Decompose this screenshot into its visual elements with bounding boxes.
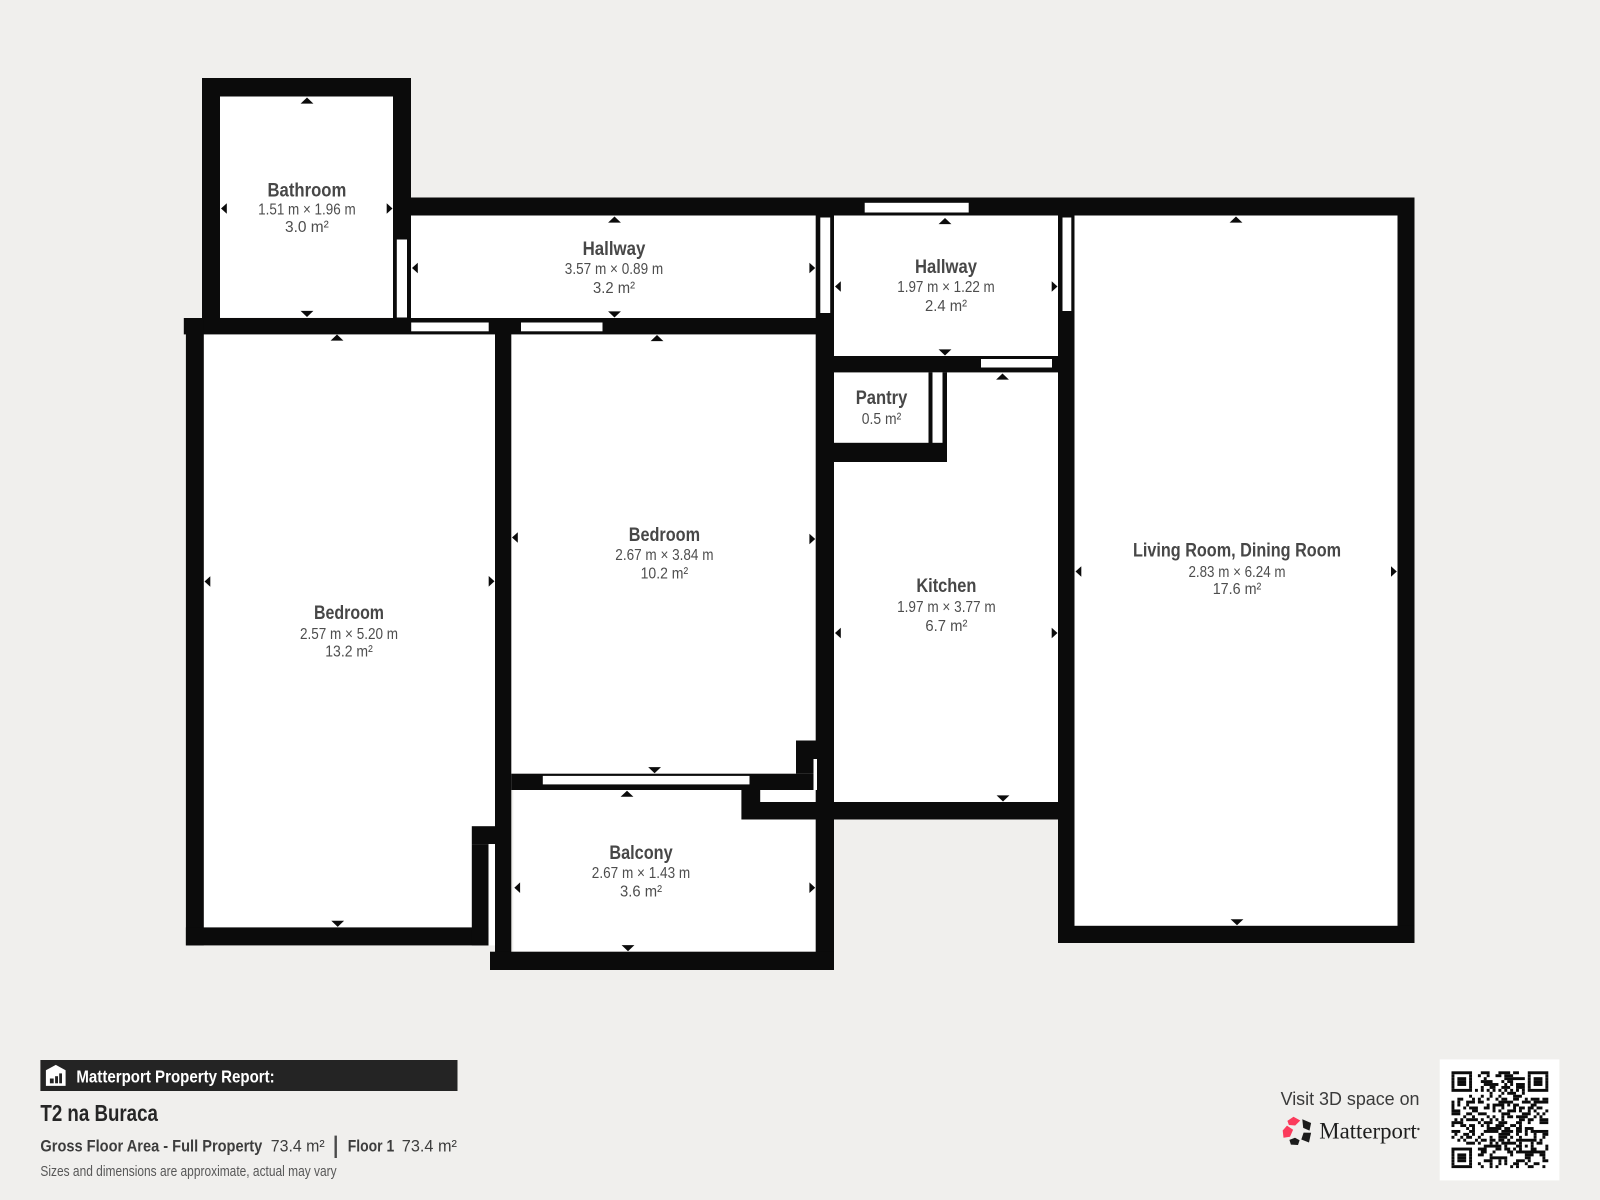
svg-text:1.97 m × 1.22 m: 1.97 m × 1.22 m [897,279,995,296]
svg-text:17.6 m²: 17.6 m² [1213,581,1262,598]
svg-text:Sizes and dimensions are appro: Sizes and dimensions are approximate, ac… [40,1163,337,1180]
svg-text:2.57 m × 5.20 m: 2.57 m × 5.20 m [300,626,398,643]
svg-text:T2 na Buraca: T2 na Buraca [40,1100,158,1126]
svg-text:Matterport: Matterport [1319,1118,1417,1143]
svg-text:Hallway: Hallway [915,257,977,278]
svg-text:73.4 m²: 73.4 m² [402,1137,457,1156]
svg-text:6.7 m²: 6.7 m² [925,618,968,635]
svg-text:3.0 m²: 3.0 m² [285,219,329,236]
svg-text:Bedroom: Bedroom [629,525,700,546]
svg-text:10.2 m²: 10.2 m² [641,565,689,582]
svg-text:2.83 m × 6.24 m: 2.83 m × 6.24 m [1188,564,1285,581]
svg-text:Bathroom: Bathroom [268,180,347,201]
svg-text:3.57 m × 0.89 m: 3.57 m × 0.89 m [565,261,663,278]
svg-text:Floor 1: Floor 1 [348,1137,394,1156]
svg-text:Hallway: Hallway [583,239,646,260]
svg-text:2.4 m²: 2.4 m² [925,298,968,315]
svg-text:73.4 m²: 73.4 m² [271,1137,325,1156]
svg-text:0.5 m²: 0.5 m² [862,411,902,428]
svg-text:Bedroom: Bedroom [314,603,384,624]
svg-text:Kitchen: Kitchen [916,576,976,597]
svg-text:13.2 m²: 13.2 m² [325,643,373,660]
svg-text:Balcony: Balcony [609,843,673,864]
svg-text:3.2 m²: 3.2 m² [593,280,636,297]
svg-text:2.67 m × 3.84 m: 2.67 m × 3.84 m [615,547,713,564]
svg-text:Visit 3D space on: Visit 3D space on [1281,1089,1420,1109]
svg-text:Matterport Property Report:: Matterport Property Report: [76,1066,274,1086]
svg-text:Living Room, Dining Room: Living Room, Dining Room [1133,540,1341,561]
svg-text:1.51 m × 1.96 m: 1.51 m × 1.96 m [258,202,356,219]
svg-text:2.67 m × 1.43 m: 2.67 m × 1.43 m [592,865,690,882]
svg-text:Pantry: Pantry [856,388,908,409]
svg-text:3.6 m²: 3.6 m² [620,883,663,900]
svg-text:Gross Floor Area - Full Proper: Gross Floor Area - Full Property [40,1137,262,1156]
svg-text:1.97 m × 3.77 m: 1.97 m × 3.77 m [897,599,996,616]
